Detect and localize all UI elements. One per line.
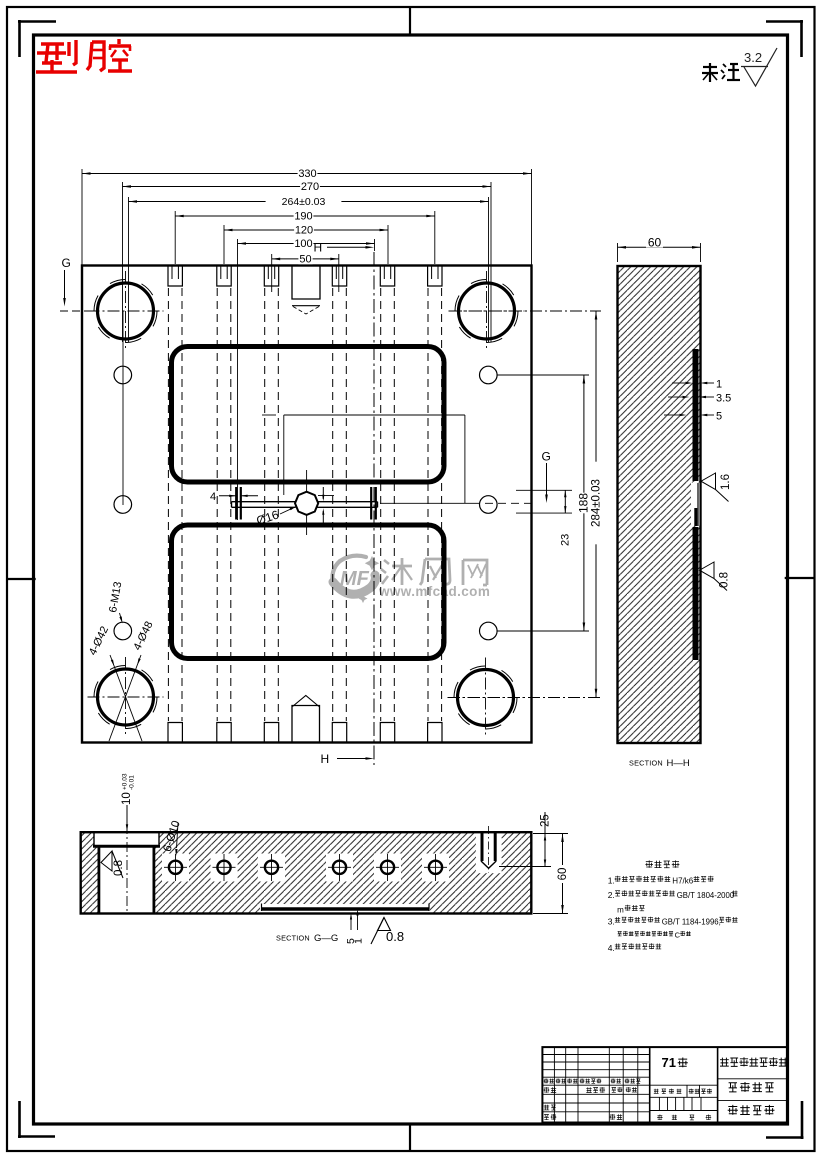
svg-text:GB/T 1184-1996,: GB/T 1184-1996,	[662, 918, 721, 927]
svg-text:60: 60	[648, 236, 662, 250]
svg-text:120: 120	[295, 225, 313, 237]
svg-text:190: 190	[294, 211, 312, 223]
svg-text:MF: MF	[340, 568, 370, 590]
svg-text:264±0.03: 264±0.03	[282, 196, 326, 208]
svg-text:330: 330	[298, 168, 316, 180]
svg-text:0.8: 0.8	[719, 572, 731, 588]
svg-text:G—G: G—G	[314, 933, 338, 944]
svg-text:H7/k6: H7/k6	[672, 877, 693, 886]
svg-text:C: C	[675, 931, 681, 940]
svg-text:188: 188	[576, 493, 590, 513]
svg-text:2.: 2.	[608, 890, 615, 900]
svg-text:3.5: 3.5	[716, 393, 731, 405]
svg-text:1.: 1.	[608, 876, 615, 886]
svg-text:3.: 3.	[608, 917, 615, 927]
svg-text:3.2: 3.2	[744, 50, 762, 65]
svg-text:4.: 4.	[608, 943, 615, 953]
svg-text:60: 60	[557, 868, 569, 881]
svg-text:-0.01: -0.01	[129, 775, 136, 790]
svg-text:H: H	[321, 752, 330, 766]
svg-text:www.mfcad.com: www.mfcad.com	[378, 584, 490, 599]
svg-text:SECTION: SECTION	[629, 759, 663, 768]
svg-text:284±0.03: 284±0.03	[591, 479, 603, 527]
svg-text:1: 1	[353, 938, 365, 944]
svg-text:1: 1	[716, 379, 722, 391]
svg-text:25: 25	[540, 814, 552, 827]
svg-text:270: 270	[301, 181, 319, 193]
svg-text:50: 50	[299, 254, 311, 266]
svg-text:23: 23	[560, 534, 572, 546]
svg-text:G: G	[542, 450, 551, 464]
svg-text:5: 5	[716, 411, 722, 423]
svg-text:G: G	[62, 256, 71, 270]
svg-text:+0.03: +0.03	[122, 773, 129, 790]
svg-text:4: 4	[210, 491, 216, 503]
svg-text:100: 100	[294, 238, 312, 250]
svg-text:71: 71	[662, 1055, 676, 1070]
svg-text:0.8: 0.8	[386, 929, 404, 944]
svg-text:SECTION: SECTION	[276, 934, 310, 943]
svg-text:GB/T 1804-2000: GB/T 1804-2000	[677, 891, 735, 900]
svg-text:0.8: 0.8	[113, 860, 125, 876]
svg-text:10: 10	[121, 792, 133, 805]
svg-text:m: m	[617, 906, 624, 915]
svg-text:H—H: H—H	[667, 758, 690, 769]
svg-text:H: H	[314, 241, 323, 255]
svg-text:1.6: 1.6	[720, 474, 732, 490]
